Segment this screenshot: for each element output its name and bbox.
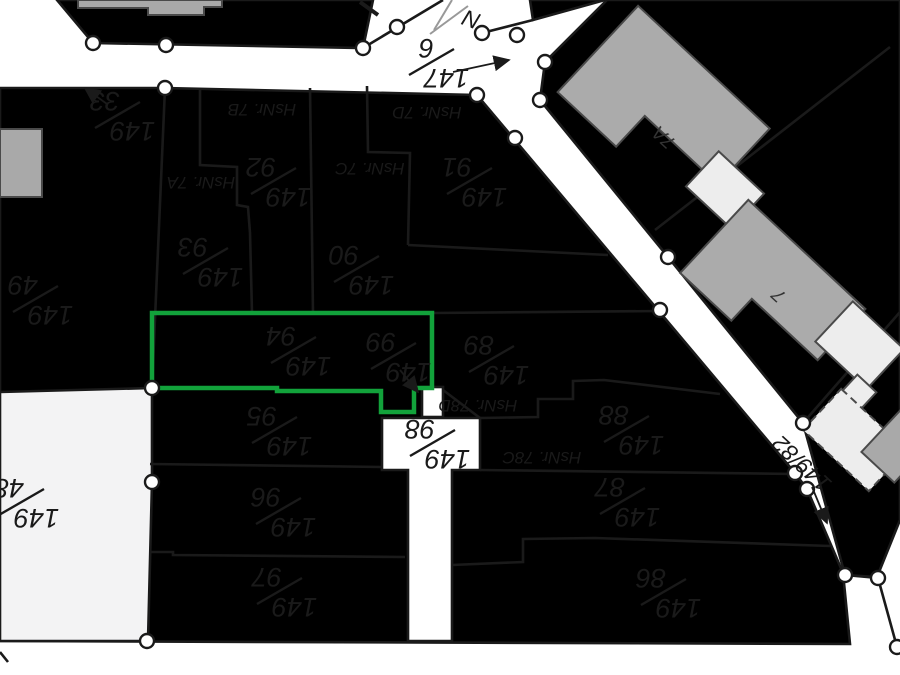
svg-text:149: 149 [462,182,507,212]
svg-text:89: 89 [464,330,494,360]
svg-text:147: 147 [423,63,469,93]
svg-text:149: 149 [286,351,331,381]
boundary-point [510,28,524,42]
svg-text:149: 149 [271,512,316,542]
cadastral-map-viewport: 1493314949149481476149921499314990149911… [0,0,900,675]
svg-text:149: 149 [619,430,664,460]
svg-text:86: 86 [635,563,666,593]
svg-text:92: 92 [246,152,276,182]
svg-text:149: 149 [484,360,529,390]
svg-text:149: 149 [14,503,59,533]
label-hsnr-78d: HsNr. 78D [439,396,518,415]
boundary-point [86,36,100,50]
svg-text:149: 149 [198,262,243,292]
boundary-point [653,303,667,317]
svg-text:99: 99 [366,327,396,357]
cadastral-map: 1493314949149481476149921499314990149911… [0,0,900,675]
svg-text:98: 98 [405,414,435,444]
label-hsnr-7a: HsNr. 7A [167,173,235,192]
svg-text:149: 149 [386,357,431,387]
svg-text:94: 94 [266,321,296,351]
boundary-point [158,81,172,95]
boundary-point [145,381,159,395]
svg-text:48: 48 [0,473,24,503]
svg-text:33: 33 [90,86,120,116]
svg-text:90: 90 [329,240,359,270]
boundary-point [145,475,159,489]
svg-text:87: 87 [594,472,625,502]
svg-text:149: 149 [110,116,155,146]
boundary-point [890,640,900,654]
svg-text:97: 97 [251,562,282,592]
boundary-point [871,571,885,585]
label-hsnr-78c: HsNr. 78C [502,448,581,467]
svg-text:93: 93 [178,232,208,262]
boundary-point [470,88,484,102]
svg-text:149: 149 [349,270,394,300]
boundary-point [796,416,810,430]
svg-text:149: 149 [267,431,312,461]
svg-text:6: 6 [418,33,434,63]
boundary-point [838,568,852,582]
svg-text:88: 88 [599,400,629,430]
boundary-point [159,38,173,52]
svg-text:149: 149 [266,182,311,212]
building-left-edge[interactable] [0,129,42,197]
boundary-point [390,20,404,34]
svg-text:96: 96 [250,482,281,512]
svg-text:149: 149 [272,592,317,622]
boundary-point [538,55,552,69]
svg-text:95: 95 [246,401,277,431]
label-hsnr-7d: HsNr. 7D [392,103,461,122]
svg-text:91: 91 [442,152,472,182]
boundary-point [508,131,522,145]
boundary-point [661,250,675,264]
svg-text:149: 149 [615,502,660,532]
label-hsnr-7b: HsNr. 7B [228,100,296,119]
boundary-point [140,634,154,648]
svg-text:49: 49 [8,270,38,300]
boundary-point [356,41,370,55]
svg-text:149: 149 [28,300,73,330]
boundary-point [533,93,547,107]
label-hsnr-7c: HsNr. 7C [335,159,405,178]
svg-text:149: 149 [656,593,701,623]
svg-text:149: 149 [425,444,470,474]
